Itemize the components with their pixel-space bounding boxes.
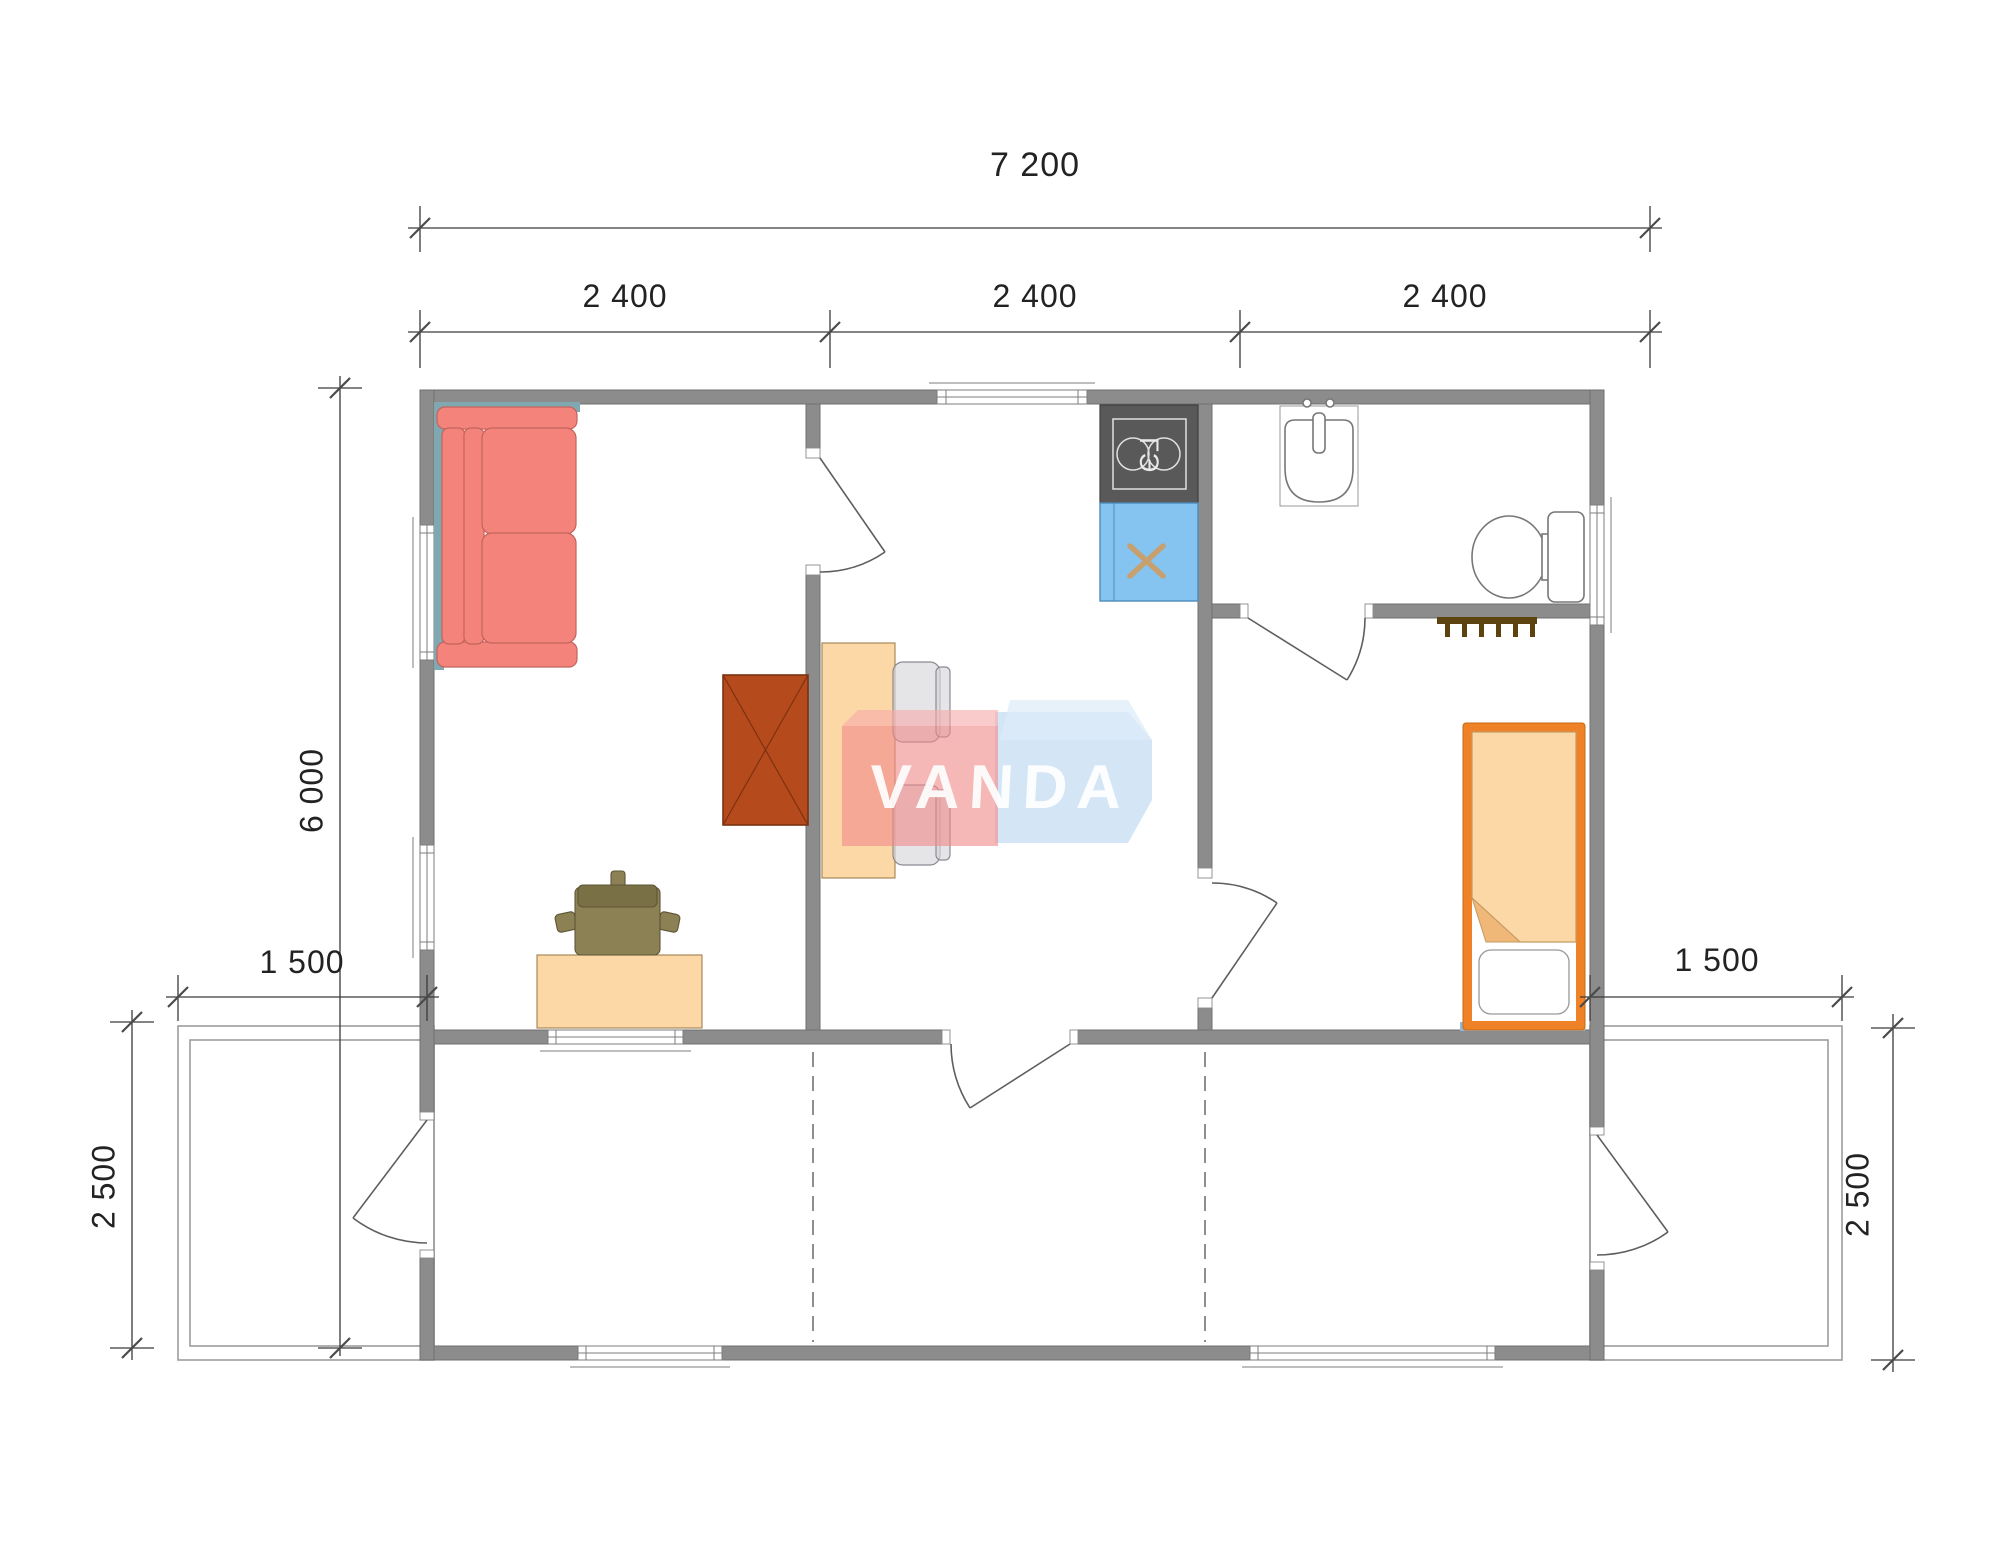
dim-label-right-terrace-width: 1 500 — [1617, 942, 1817, 979]
door-veranda-left — [353, 1120, 427, 1243]
door-veranda-right — [1597, 1135, 1668, 1255]
stove-type-label: ГЭ — [1122, 428, 1176, 482]
door-entrance — [951, 1044, 1070, 1108]
watermark-brand-text: VANDA — [843, 752, 1157, 823]
dim-label-module-1: 2 400 — [525, 278, 725, 315]
sofa — [434, 402, 580, 670]
right-deck — [1590, 1026, 1842, 1360]
door-living-to-middle — [820, 458, 885, 572]
dim-label-left-terrace-width: 1 500 — [202, 944, 402, 981]
bed-pillow — [1479, 950, 1569, 1014]
kitchen-sink-cabinet — [1100, 503, 1198, 601]
coat-hooks — [1437, 617, 1537, 637]
dim-label-module-2: 2 400 — [935, 278, 1135, 315]
exterior-walls — [420, 390, 1604, 1360]
dimension-modules — [408, 310, 1662, 368]
bed-blanket — [1472, 732, 1576, 942]
dimension-overall-width — [408, 206, 1662, 252]
office-chair — [554, 871, 680, 955]
window-kitchen-top — [929, 383, 1095, 404]
desk — [537, 955, 702, 1028]
door-middle-to-bedroom — [1212, 883, 1277, 998]
window-veranda-right — [1242, 1346, 1503, 1367]
dim-label-overall-depth: 6 000 — [294, 691, 331, 891]
floor-plan-canvas: 7 200 2 400 2 400 2 400 6 000 1 500 2 50… — [0, 0, 2000, 1563]
window-bathroom-right — [1590, 497, 1611, 633]
dim-label-left-terrace-depth: 2 500 — [86, 1087, 123, 1287]
dim-label-module-3: 2 400 — [1345, 278, 1545, 315]
door-jambs — [420, 448, 1604, 1270]
bed — [1460, 723, 1585, 1031]
dim-label-right-terrace-depth: 2 500 — [1840, 1095, 1877, 1295]
dimension-right-terrace-width — [1580, 975, 1854, 1021]
window-living-bottom — [540, 1030, 691, 1051]
window-living-left-lower — [413, 837, 434, 958]
dimension-right-terrace-depth — [1871, 1014, 1915, 1372]
left-deck — [178, 1026, 434, 1360]
wardrobe — [723, 675, 808, 825]
dim-label-overall-width: 7 200 — [935, 146, 1135, 185]
toilet — [1472, 512, 1584, 602]
washbasin — [1280, 399, 1358, 506]
window-veranda-left — [570, 1346, 730, 1367]
dimension-left-terrace-width — [166, 975, 439, 1021]
door-bathroom — [1248, 618, 1365, 680]
window-living-left-upper — [413, 517, 434, 668]
